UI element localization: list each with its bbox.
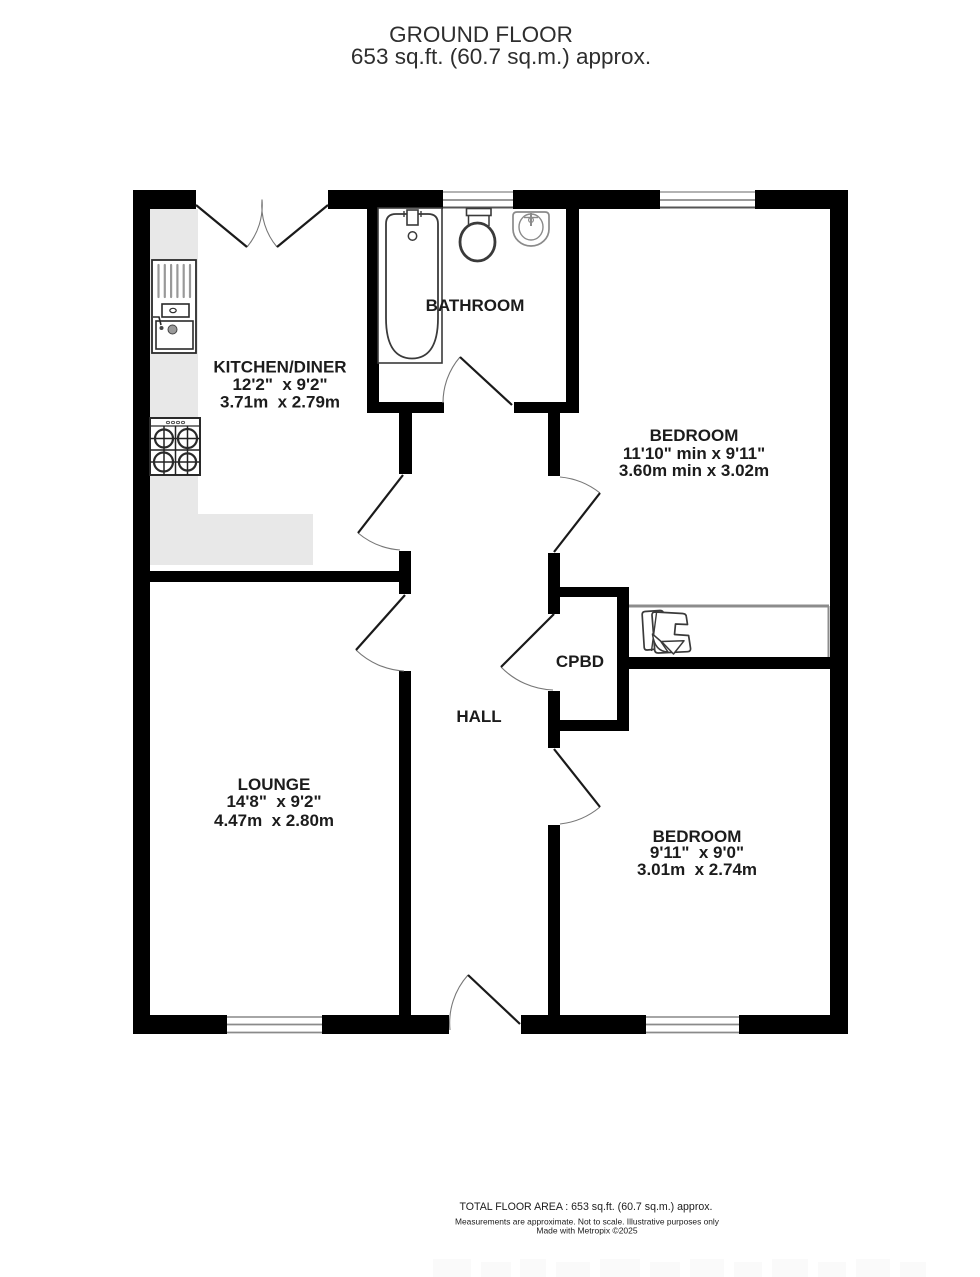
svg-text:KITCHEN/DINER: KITCHEN/DINER (213, 358, 346, 377)
svg-text:653 sq.ft. (60.7 sq.m.) approx: 653 sq.ft. (60.7 sq.m.) approx. (351, 44, 651, 69)
svg-text:3.60m min x 3.02m: 3.60m min x 3.02m (619, 461, 769, 480)
svg-text:TOTAL FLOOR AREA : 653 sq.ft.: TOTAL FLOOR AREA : 653 sq.ft. (60.7 sq.m… (460, 1201, 713, 1213)
svg-text:14'8" x 9'2": 14'8" x 9'2" (226, 792, 321, 811)
svg-text:BEDROOM: BEDROOM (650, 426, 739, 445)
svg-text:BATHROOM: BATHROOM (426, 296, 525, 315)
svg-text:3.01m x 2.74m: 3.01m x 2.74m (637, 860, 757, 879)
svg-text:CPBD: CPBD (556, 652, 604, 671)
svg-text:4.47m x 2.80m: 4.47m x 2.80m (214, 811, 334, 830)
svg-text:3.71m x 2.79m: 3.71m x 2.79m (220, 393, 340, 412)
svg-text:HALL: HALL (456, 707, 501, 726)
svg-text:12'2" x 9'2": 12'2" x 9'2" (232, 375, 327, 394)
svg-text:Made with Metropix ©2025: Made with Metropix ©2025 (536, 1226, 638, 1236)
